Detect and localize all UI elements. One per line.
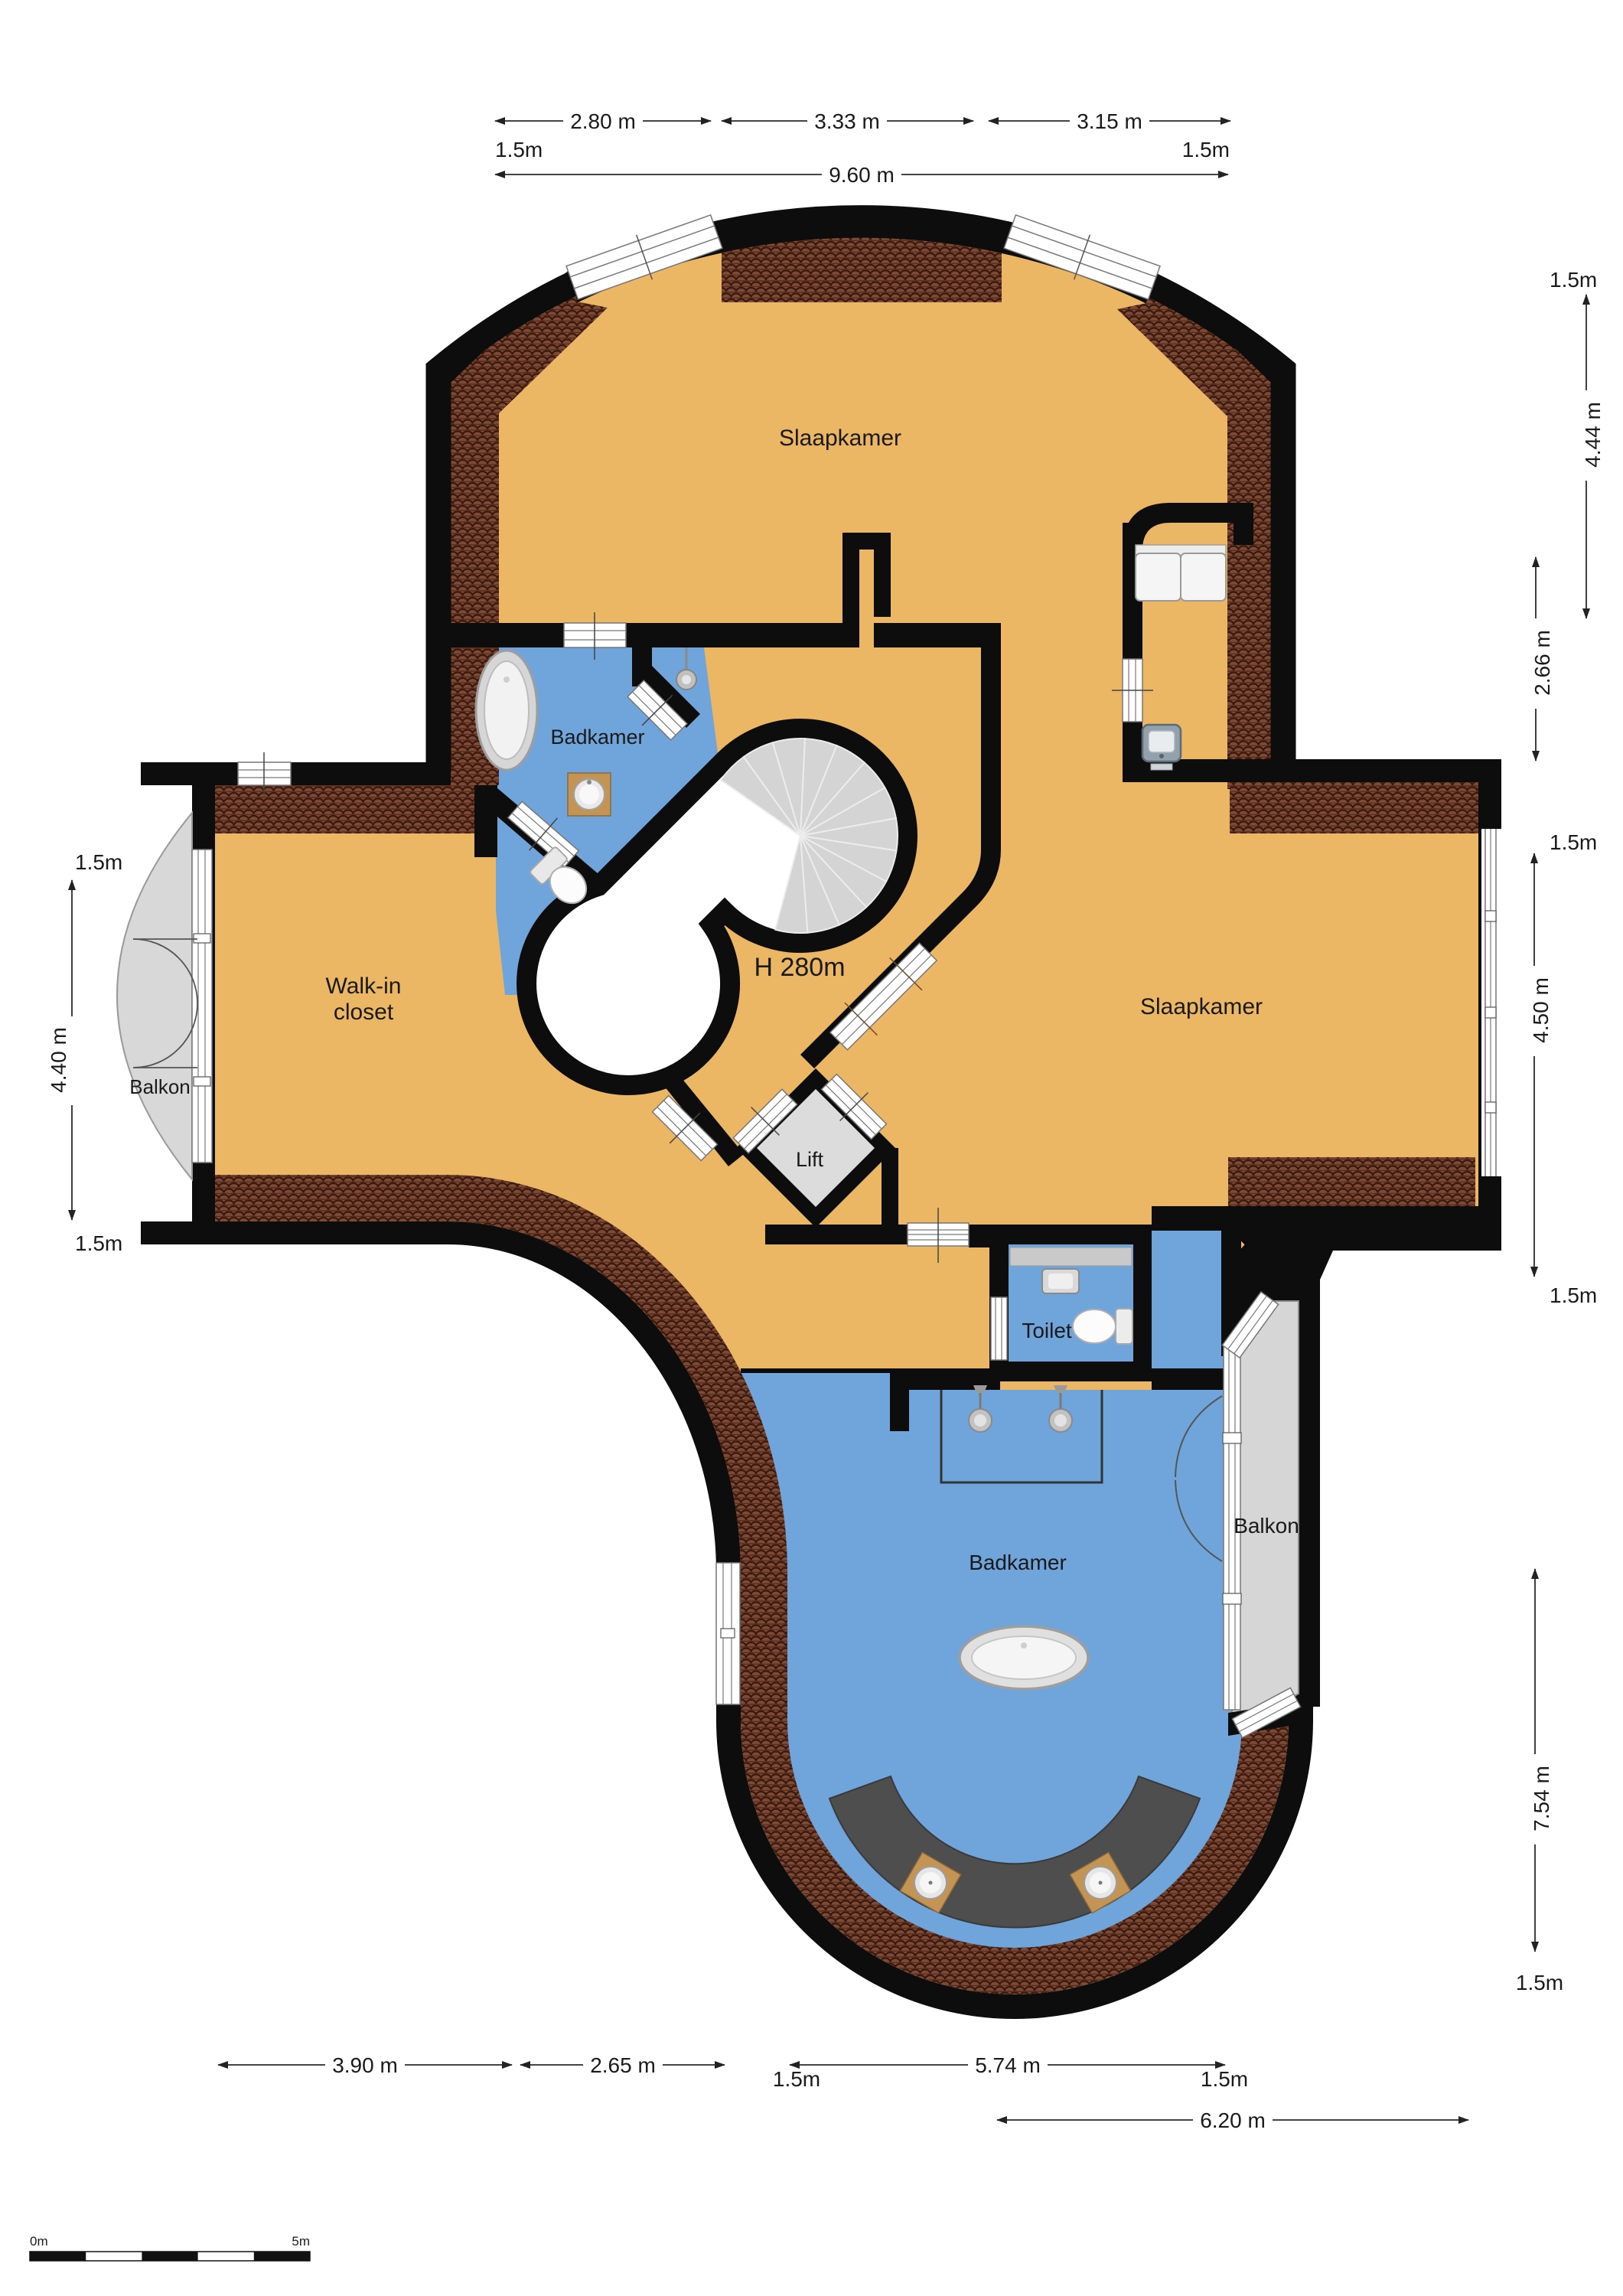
svg-text:6.20 m: 6.20 m <box>1200 2108 1266 2132</box>
svg-text:0m: 0m <box>30 2234 48 2249</box>
svg-text:4.40 m: 4.40 m <box>47 1027 70 1093</box>
svg-text:3.90 m: 3.90 m <box>332 2053 398 2077</box>
svg-text:5m: 5m <box>292 2234 310 2249</box>
svg-text:2.65 m: 2.65 m <box>590 2053 656 2077</box>
svg-text:7.54 m: 7.54 m <box>1530 1766 1553 1831</box>
svg-text:Balkon: Balkon <box>1234 1514 1299 1538</box>
svg-text:1.5m: 1.5m <box>495 138 543 161</box>
svg-text:1.5m: 1.5m <box>75 1231 122 1255</box>
svg-text:Balkon: Balkon <box>129 1075 191 1098</box>
svg-text:1.5m: 1.5m <box>1516 1971 1563 1994</box>
svg-text:H 280m: H 280m <box>754 953 845 982</box>
svg-text:Toilet: Toilet <box>1022 1319 1072 1342</box>
svg-text:2.80 m: 2.80 m <box>570 109 636 133</box>
svg-text:Slaapkamer: Slaapkamer <box>1140 994 1263 1019</box>
svg-text:closet: closet <box>334 1000 394 1025</box>
svg-text:9.60 m: 9.60 m <box>829 163 895 187</box>
svg-text:1.5m: 1.5m <box>1182 138 1230 161</box>
svg-text:1.5m: 1.5m <box>1201 2067 1248 2091</box>
svg-text:1.5m: 1.5m <box>773 2067 820 2091</box>
svg-text:Badkamer: Badkamer <box>550 726 644 748</box>
svg-text:Lift: Lift <box>796 1148 824 1171</box>
svg-text:2.66 m: 2.66 m <box>1530 630 1554 696</box>
svg-text:1.5m: 1.5m <box>75 850 122 874</box>
svg-text:Walk-in: Walk-in <box>326 974 402 999</box>
svg-text:3.15 m: 3.15 m <box>1077 109 1142 133</box>
svg-text:4.44 m: 4.44 m <box>1581 402 1605 468</box>
svg-text:1.5m: 1.5m <box>1550 1283 1597 1307</box>
svg-text:1.5m: 1.5m <box>1550 268 1597 292</box>
svg-text:5.74 m: 5.74 m <box>975 2053 1041 2077</box>
svg-text:Slaapkamer: Slaapkamer <box>779 426 901 451</box>
svg-text:3.33 m: 3.33 m <box>814 109 880 133</box>
svg-text:Badkamer: Badkamer <box>969 1551 1067 1574</box>
svg-text:4.50 m: 4.50 m <box>1529 977 1553 1043</box>
svg-text:1.5m: 1.5m <box>1550 830 1597 854</box>
